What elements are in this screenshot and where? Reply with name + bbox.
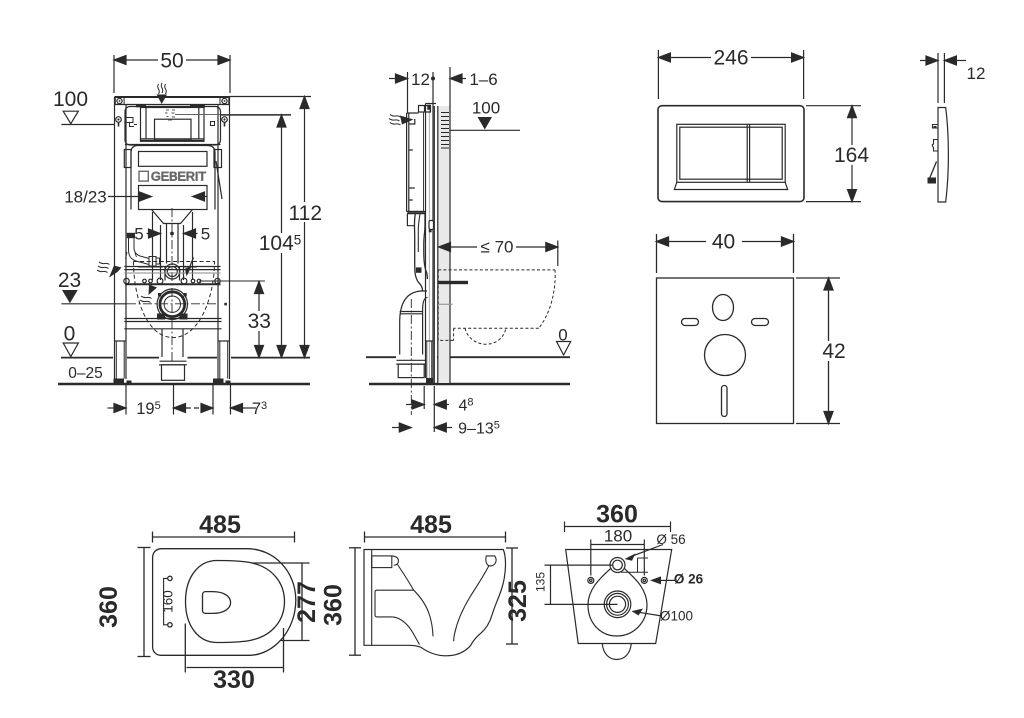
svg-text:5: 5 [134,225,143,244]
svg-text:5: 5 [201,225,210,244]
svg-text:100: 100 [472,99,500,118]
svg-text:246: 246 [713,47,748,70]
svg-text:100: 100 [53,88,88,111]
svg-text:180: 180 [604,527,632,546]
svg-text:1–6: 1–6 [469,70,497,89]
svg-text:Ø 26: Ø 26 [674,572,704,587]
svg-text:325: 325 [504,580,532,622]
svg-text:GEBERIT: GEBERIT [151,172,206,184]
svg-text:164: 164 [834,144,869,167]
svg-text:135: 135 [534,572,548,592]
svg-text:485: 485 [410,511,452,539]
svg-text:33: 33 [248,310,271,333]
svg-text:330: 330 [213,666,255,694]
svg-text:360: 360 [95,586,123,628]
svg-text:360: 360 [596,501,638,529]
svg-text:40: 40 [712,231,735,254]
svg-text:360: 360 [320,584,348,626]
svg-text:Ø100: Ø100 [660,609,693,624]
svg-text:9–135: 9–135 [458,420,500,438]
svg-text:0: 0 [558,326,567,345]
svg-text:160: 160 [161,590,176,613]
svg-text:18/23: 18/23 [64,188,107,207]
svg-text:42: 42 [822,340,845,363]
svg-text:12: 12 [411,70,430,89]
svg-text:23: 23 [58,269,81,292]
svg-text:485: 485 [199,511,241,539]
svg-text:112: 112 [289,202,322,225]
svg-text:50: 50 [160,50,183,73]
svg-text:12: 12 [967,64,986,83]
svg-text:≤ 70: ≤ 70 [481,238,514,257]
svg-text:277: 277 [293,581,321,623]
svg-text:0: 0 [64,323,76,346]
svg-text:0–25: 0–25 [68,365,102,382]
svg-text:Ø 56: Ø 56 [656,532,685,547]
